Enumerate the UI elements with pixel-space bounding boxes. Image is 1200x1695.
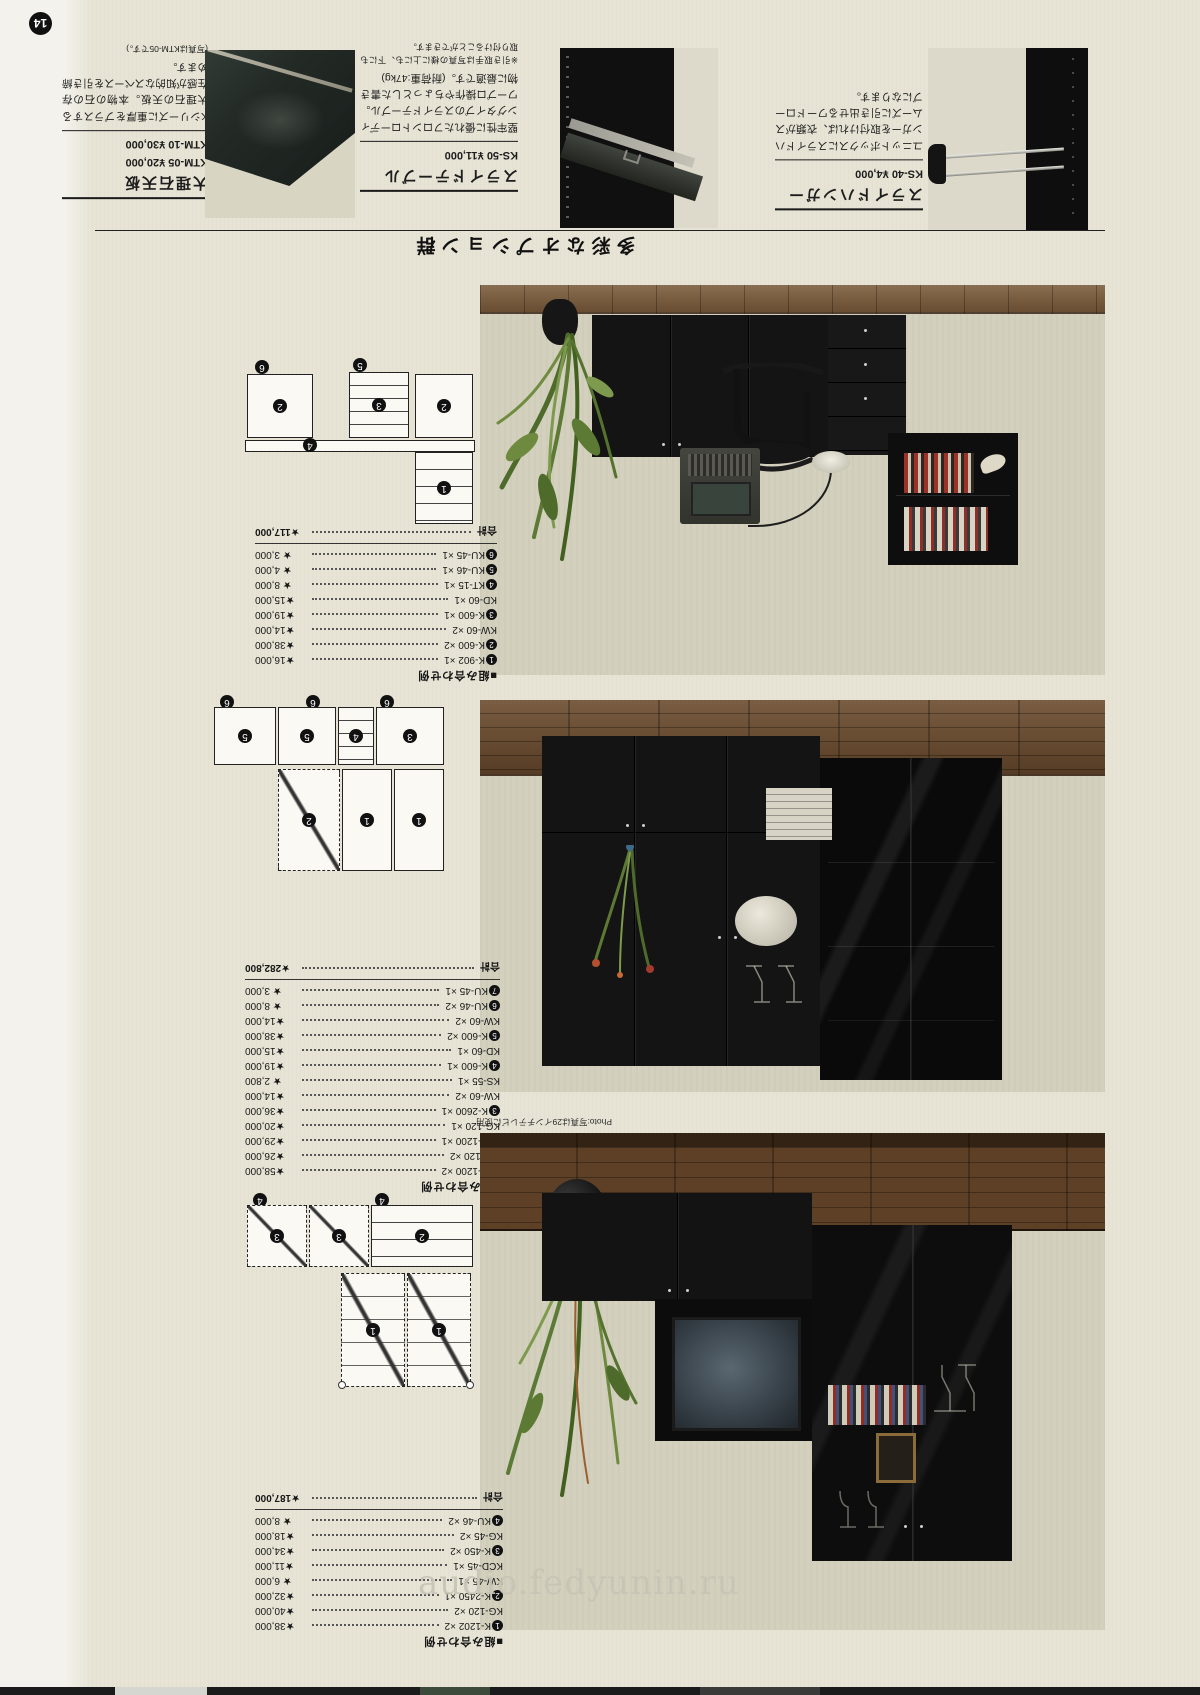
item-price: ★ 3,000: [255, 549, 307, 560]
product-price: KS-40 ¥4,000: [775, 164, 923, 181]
diagram-box: 2: [371, 1205, 473, 1267]
page-number-badge: 14: [29, 12, 52, 35]
price-row: KD-60 ×1★15,000: [255, 592, 497, 607]
price-row: 4KT-15 ×1★ 8,000: [255, 577, 497, 592]
tv-screen: [672, 1317, 801, 1431]
price-row: 2K-1200 ×1★29,000: [245, 1133, 500, 1148]
layout-diagram-b: 6 6 6 5 5 4 3 2 1 1: [212, 695, 445, 875]
dot-leader: [302, 1155, 444, 1157]
item-code: K-450 ×2: [450, 1545, 491, 1556]
diagram-number-badge: 2: [415, 1229, 429, 1243]
item-code: KU-45 ×1: [442, 549, 485, 560]
item-code: KU-46 ×2: [445, 1000, 488, 1011]
product-price: KTM-05 ¥20,000: [62, 153, 208, 170]
diagram-number-badge: 1: [412, 813, 426, 827]
diagram-number-badge: 1: [366, 1323, 380, 1337]
product-name: スライドテーブル: [360, 164, 518, 187]
product-slide-table-photo: [560, 48, 718, 228]
item-code: K-600 ×1: [444, 609, 485, 620]
dot-leader: [312, 584, 438, 586]
handle-dot: [718, 936, 721, 939]
dot-leader: [312, 569, 436, 571]
diagram-box: 4: [338, 707, 374, 765]
goblets-icon: [830, 1489, 890, 1535]
books-row: [828, 1385, 926, 1425]
diagram-shelf-board: [245, 440, 475, 452]
total-price: ★187,000: [255, 1493, 307, 1504]
page-number: 14: [34, 17, 47, 31]
handle-dot: [686, 1289, 689, 1292]
item-code: K-600 ×1: [447, 1060, 488, 1071]
price-row: KG-120 ×1★20,000: [245, 1118, 500, 1133]
item-price: ★32,000: [255, 1590, 307, 1601]
diagram-number-badge: 6: [255, 360, 269, 374]
item-price: ★ 3,000: [245, 985, 297, 996]
item-number-badge: 4: [492, 1515, 503, 1526]
diagram-number-badge: 3: [372, 398, 386, 412]
diagram-box: 2: [415, 374, 473, 438]
total-price: ★117,000: [255, 527, 307, 538]
item-price: ★14,000: [245, 1090, 297, 1101]
item-price: ★38,000: [245, 1030, 297, 1041]
diagram-number-badge: 3: [403, 729, 417, 743]
product-slide-hanger-photo: [928, 48, 1088, 230]
photo-caption: Photo:写真は29インチテレビに使用: [476, 1116, 612, 1128]
item-price: ★34,000: [255, 1545, 307, 1556]
item-price: ★14,000: [245, 1015, 297, 1026]
diagram-glass-box: 1: [407, 1273, 471, 1387]
watermark-text: audio.fedyunin.ru: [418, 1563, 808, 1603]
dot-leader: [302, 1050, 451, 1052]
product-header: スライドテーブル KS-50 ¥11,000: [360, 141, 518, 192]
item-price: ★38,000: [255, 1620, 307, 1631]
item-code: KW-60 ×2: [452, 624, 497, 635]
product-price: KS-50 ¥11,000: [360, 146, 518, 163]
diagram-number-badge: 1: [437, 481, 451, 495]
edge-segment: [420, 1687, 490, 1695]
item-code: KT-15 ×1: [444, 579, 485, 590]
price-row: 7KU-45 ×1★ 3,000: [245, 983, 500, 998]
price-row: 1K-902 ×1★16,000: [255, 652, 497, 667]
total-row: 合計★117,000: [255, 524, 497, 544]
dot-leader: [302, 967, 474, 969]
arrangement-photo-b: [480, 700, 1105, 1092]
dot-leader: [312, 629, 446, 631]
handle-dot: [662, 443, 665, 446]
diagram-box: 1: [415, 452, 473, 524]
diagram-box: 2: [247, 374, 313, 438]
price-row: 5KU-46 ×1★ 4,000: [255, 562, 497, 577]
dot-leader: [302, 1035, 441, 1037]
item-price: ★20,000: [245, 1120, 297, 1131]
price-row: KG-45 ×2★18,000: [255, 1528, 503, 1543]
diagram-box: 3: [376, 707, 444, 765]
lamp-shade: [812, 451, 850, 473]
handle-dot: [734, 936, 737, 939]
item-price: ★15,000: [255, 594, 307, 605]
product-note: ※引き取手は写真の様に上にも、下にも取り付けることができます。: [360, 40, 518, 66]
price-list: ■組み合わせ例1K-902 ×1★16,0002K-600 ×2★38,000K…: [255, 524, 497, 684]
dot-leader: [302, 1095, 449, 1097]
item-price: ★16,000: [255, 654, 307, 665]
handle-dot: [920, 1525, 923, 1528]
price-row: KW-120 ×2★26,000: [245, 1148, 500, 1163]
item-price: ★11,000: [255, 1560, 307, 1571]
options-band-rule: [95, 230, 1105, 231]
upper-cupboards: [542, 1193, 812, 1301]
diagram-number-badge: 5: [353, 358, 367, 372]
dot-leader: [302, 1005, 439, 1007]
glass-shelf-line: [828, 946, 994, 947]
item-price: ★ 4,000: [255, 564, 307, 575]
total-label: 合計: [483, 1491, 503, 1506]
plant-icon: [488, 327, 638, 567]
handle-dot: [864, 329, 867, 332]
item-code: KD-60 ×1: [454, 594, 497, 605]
edge-segment: [115, 1687, 207, 1695]
product-marble-top-photo: [205, 50, 355, 218]
price-row: 4K-600 ×1★19,000: [245, 1058, 500, 1073]
diagram-box: 1: [342, 769, 392, 871]
word-processor-screen: [691, 482, 751, 516]
hanger-end-cap: [928, 144, 946, 184]
pin-holes: [1072, 58, 1074, 218]
photo-background: [674, 48, 718, 228]
diagram-glass-box: 3: [247, 1205, 307, 1267]
horn-ornament: [978, 451, 1008, 475]
dot-leader: [312, 1497, 477, 1499]
price-row: KD-60 ×1★15,000: [245, 1043, 500, 1058]
price-row: 6KU-46 ×2★ 8,000: [245, 998, 500, 1013]
diagram-number-badge: 5: [238, 729, 252, 743]
wine-glasses-icon: [742, 962, 812, 1018]
item-code: KW-60 ×2: [455, 1090, 500, 1101]
binder-stack: [766, 788, 832, 840]
item-price: ★15,000: [245, 1045, 297, 1056]
product-price: KTM-10 ¥30,000: [62, 135, 208, 152]
tall-glass-cabinet: [812, 1225, 1012, 1561]
price-row: KS-55 ×1★ 2,800: [245, 1073, 500, 1088]
dot-leader: [312, 554, 436, 556]
glass-door-seam: [910, 758, 911, 1080]
dot-leader: [312, 644, 438, 646]
item-price: ★ 8,000: [245, 1000, 297, 1011]
item-number-badge: 3: [492, 1545, 503, 1556]
diagram-number-badge: 1: [360, 813, 374, 827]
item-number-badge: 2: [486, 639, 497, 650]
product-header: 大理石天板 KTM-05 ¥20,000 KTM-10 ¥30,000: [62, 130, 208, 199]
catalog-page-scan: 14 大理石天板 KTM-05 ¥20,000 KTM-10 ¥30,000 K…: [0, 0, 1200, 1695]
hanging-glasses-icon: [932, 1363, 1000, 1427]
diagram-box: 3: [349, 372, 409, 438]
dot-leader: [302, 1125, 445, 1127]
dot-leader: [302, 1140, 436, 1142]
price-row: 1K-1200 ×2★58,000: [245, 1163, 500, 1178]
dot-leader: [312, 1610, 448, 1612]
shelf-divider: [896, 495, 1010, 496]
total-price: ★282,800: [245, 963, 297, 974]
price-list: ■組み合わせ例1K-1200 ×2★58,000KW-120 ×2★26,000…: [245, 960, 500, 1195]
cabinet-side-panel: [1026, 48, 1088, 230]
item-price: ★36,000: [245, 1105, 297, 1116]
framed-picture: [876, 1433, 916, 1483]
price-row: 6KU-45 ×1★ 3,000: [255, 547, 497, 562]
arrangement-photo-c: [480, 1133, 1105, 1630]
dot-leader: [312, 659, 438, 661]
price-row: 3K-450 ×2★34,000: [255, 1543, 503, 1558]
item-code: KD-60 ×1: [457, 1045, 500, 1056]
price-row: 3K-600 ×1★19,000: [255, 607, 497, 622]
product-note: (写真はKTM-05です。): [62, 42, 208, 55]
cabinet-seam: [677, 1193, 678, 1301]
item-code: KW-60 ×2: [455, 1015, 500, 1026]
books-row: [904, 507, 988, 551]
options-section-title: 多彩なオプション群: [408, 234, 638, 260]
item-price: ★40,000: [255, 1605, 307, 1616]
list-heading: ■組み合わせ例: [255, 1633, 503, 1650]
door-knob: [466, 1381, 474, 1389]
item-code: KG-120 ×2: [454, 1605, 503, 1616]
item-price: ★14,000: [255, 624, 307, 635]
diagram-number-badge: 2: [273, 399, 287, 413]
handle-dot: [626, 824, 629, 827]
item-code: KU-45 ×1: [445, 985, 488, 996]
item-price: ★26,000: [245, 1150, 297, 1161]
diagram-number-badge: 2: [302, 813, 316, 827]
glass-shelf-line: [828, 1020, 994, 1021]
dot-leader: [312, 614, 438, 616]
product-header: スライドハンガー KS-40 ¥4,000: [775, 159, 923, 210]
total-label: 合計: [480, 961, 500, 976]
product-description: Kシリーズに重厚をプラスする大理石の天板。本物の石の存在感が知的なスペースを引き…: [62, 59, 208, 124]
handle-dot: [864, 363, 867, 366]
item-price: ★19,000: [245, 1060, 297, 1071]
door-knob: [338, 1381, 346, 1389]
item-code: K-902 ×1: [444, 654, 485, 665]
cabinet-seam: [726, 736, 727, 1066]
item-price: ★38,000: [255, 639, 307, 650]
dot-leader: [302, 1110, 436, 1112]
price-row: KW-60 ×2★14,000: [245, 1013, 500, 1028]
item-number-badge: 4: [489, 1060, 500, 1071]
bookshelf-unit: [888, 433, 1018, 565]
dot-leader: [312, 1535, 454, 1537]
price-row: KG-120 ×2★40,000: [255, 1603, 503, 1618]
dot-leader: [312, 531, 471, 533]
glass-shelf-line: [828, 862, 994, 863]
diagram-number-badge: 3: [332, 1229, 346, 1243]
layout-diagram-c: 4 4 3 3 2 1 1: [245, 1193, 473, 1389]
diagram-number-badge: 4: [303, 438, 317, 452]
item-number-badge: 5: [486, 564, 497, 575]
item-price: ★29,000: [245, 1135, 297, 1146]
diagram-glass-box: 3: [309, 1205, 369, 1267]
item-price: ★ 8,000: [255, 579, 307, 590]
item-number-badge: 5: [489, 1030, 500, 1041]
item-price: ★ 8,000: [255, 1515, 307, 1526]
keyboard-keys: [688, 454, 752, 476]
round-plate: [735, 896, 797, 946]
item-price: ★ 6,000: [255, 1575, 307, 1586]
handle-dot: [904, 1525, 907, 1528]
price-row: 2K-600 ×2★38,000: [255, 637, 497, 652]
item-number-badge: 1: [492, 1620, 503, 1631]
item-code: K-2600 ×1: [442, 1105, 488, 1116]
product-name: 大理石天板: [62, 171, 208, 194]
item-price: ★18,000: [255, 1530, 307, 1541]
price-row: 3K-2600 ×1★36,000: [245, 1103, 500, 1118]
item-number-badge: 1: [486, 654, 497, 665]
diagram-number-badge: 5: [300, 729, 314, 743]
diagram-number-badge: 3: [270, 1229, 284, 1243]
price-row: KW-60 ×2★14,000: [245, 1088, 500, 1103]
item-code: KG-45 ×2: [460, 1530, 503, 1541]
total-label: 合計: [477, 525, 497, 540]
dot-leader: [312, 1625, 439, 1627]
dot-leader: [302, 1080, 452, 1082]
handle-dot: [642, 824, 645, 827]
price-row: 4KU-46 ×2★ 8,000: [255, 1513, 503, 1528]
item-number-badge: 7: [489, 985, 500, 996]
item-number-badge: 6: [486, 549, 497, 560]
diagram-box: 5: [278, 707, 336, 765]
dot-leader: [302, 1020, 449, 1022]
item-code: KU-46 ×1: [442, 564, 485, 575]
scan-bottom-edge: [0, 1687, 1200, 1695]
item-price: ★ 2,800: [245, 1075, 297, 1086]
cabinet-seam: [670, 315, 671, 457]
item-price: ★58,000: [245, 1165, 297, 1176]
tv-unit: [655, 1299, 812, 1441]
total-row: 合計★187,000: [255, 1490, 503, 1510]
item-number-badge: 6: [489, 1000, 500, 1011]
price-row: KW-60 ×2★14,000: [255, 622, 497, 637]
diagram-number-badge: 1: [432, 1323, 446, 1337]
marble-veining: [235, 90, 325, 150]
diagram-box: 1: [394, 769, 444, 871]
product-marble-top-text: 大理石天板 KTM-05 ¥20,000 KTM-10 ¥30,000 Kシリー…: [62, 42, 208, 199]
glass-cabinet-right: [820, 758, 1002, 1080]
list-heading: ■組み合わせ例: [255, 667, 497, 684]
dot-leader: [302, 1170, 436, 1172]
product-slide-hanger-text: スライドハンガー KS-40 ¥4,000 ユニットボックスにスライドハンガーを…: [775, 88, 923, 210]
dot-leader: [312, 1520, 442, 1522]
scan-left-margin: [0, 0, 92, 1695]
diagram-glass-box: 1: [341, 1273, 405, 1387]
books-row: [904, 453, 974, 493]
edge-segment: [700, 1687, 820, 1695]
item-code: K-1202 ×2: [445, 1620, 491, 1631]
dot-leader: [312, 599, 448, 601]
diagram-number-badge: 2: [437, 399, 451, 413]
product-slide-table-text: スライドテーブル KS-50 ¥11,000 堅牢性に優れたフロントローディング…: [360, 40, 518, 192]
product-description: ユニットボックスにスライドハンガーを取付ければ、衣類がスムーズに引き出せるワード…: [775, 88, 923, 153]
dot-leader: [302, 1065, 441, 1067]
product-description: 堅牢性に優れたフロントローディングタイプのスライドテーブル。ワープロ操作やちょっ…: [360, 70, 518, 135]
diagram-number-badge: 4: [349, 729, 363, 743]
item-number-badge: 3: [489, 1105, 500, 1116]
item-code: KU-46 ×2: [448, 1515, 491, 1526]
hanging-flower-icon: [580, 845, 680, 985]
item-number-badge: 4: [486, 579, 497, 590]
dot-leader: [302, 990, 439, 992]
handle-dot: [678, 443, 681, 446]
item-price: ★19,000: [255, 609, 307, 620]
product-name: スライドハンガー: [775, 182, 923, 205]
diagram-box: 5: [214, 707, 276, 765]
item-code: K-600 ×2: [447, 1030, 488, 1041]
item-number-badge: 3: [486, 609, 497, 620]
total-row: 合計★282,800: [245, 960, 500, 980]
item-code: KS-55 ×1: [458, 1075, 500, 1086]
diagram-glass-box: 2: [278, 769, 340, 871]
arrangement-photo-a: [480, 285, 1105, 675]
handle-dot: [668, 1289, 671, 1292]
price-row: 1K-1202 ×2★38,000: [255, 1618, 503, 1633]
item-code: K-600 ×2: [444, 639, 485, 650]
handle-dot: [864, 397, 867, 400]
price-row: 5K-600 ×2★38,000: [245, 1028, 500, 1043]
dot-leader: [312, 1550, 444, 1552]
